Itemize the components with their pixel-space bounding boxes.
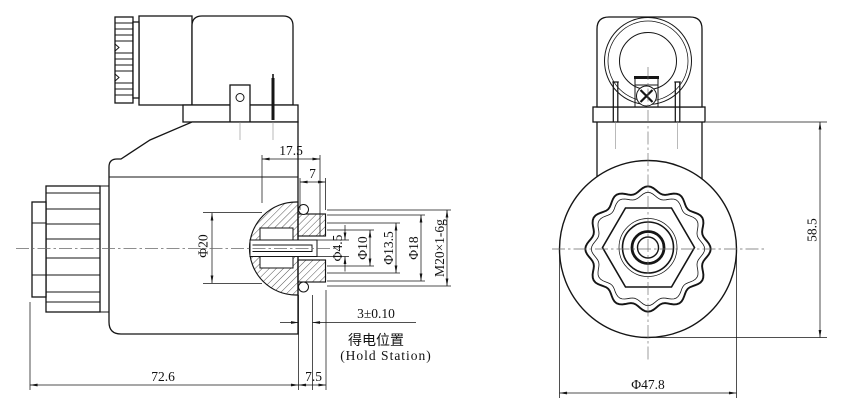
tab-hole [236, 94, 244, 102]
rib-drum [46, 186, 100, 312]
dim-coil-bore-dia: Φ20 [196, 234, 211, 258]
dim-nut-overhang: 7.5 [305, 369, 322, 384]
connector-flange-front [593, 107, 705, 122]
connector-back-block [139, 16, 192, 105]
front-view: 58.5 Φ47.8 [552, 17, 827, 398]
dim-pin-dia: Φ4.5 [330, 234, 345, 261]
side-view: 17.5 7 Φ20 Φ4.5 Φ10 Φ13.5 Φ18 M20×1-6g 3… [16, 16, 451, 390]
mounting-nut-lower [298, 260, 326, 282]
cable-gland [115, 17, 139, 103]
dim-coil-outer-dia: Φ47.8 [631, 377, 665, 392]
gland-neck [133, 22, 139, 98]
connector-front [597, 17, 702, 149]
dim-shoulder-dia: Φ18 [406, 236, 421, 260]
dim-stroke-tolerance: 3±0.10 [357, 306, 395, 321]
din-connector [115, 16, 293, 105]
dim-thread-spec: M20×1-6g [432, 219, 447, 277]
dim-nut-width: 7 [309, 166, 316, 181]
technical-drawing: 17.5 7 Φ20 Φ4.5 Φ10 Φ13.5 Φ18 M20×1-6g 3… [0, 0, 842, 415]
armature-ribs [32, 186, 109, 312]
label-hold-station-cn: 得电位置 [348, 332, 404, 349]
o-ring-bottom [299, 282, 309, 292]
label-hold-station-en: (Hold Station) [340, 348, 432, 363]
dim-bore-dia: Φ10 [355, 236, 370, 260]
gland-body [115, 17, 133, 103]
end-cap [32, 202, 46, 297]
dim-overall-height: 58.5 [805, 218, 820, 242]
mounting-nut-upper [298, 214, 326, 236]
terminal-tab [230, 85, 250, 122]
drawing-canvas: 17.5 7 Φ20 Φ4.5 Φ10 Φ13.5 Φ18 M20×1-6g 3… [0, 0, 842, 415]
dim-top-offset: 17.5 [279, 143, 303, 158]
dim-overall-length: 72.6 [151, 369, 175, 384]
dim-tube-dia: Φ13.5 [381, 231, 396, 265]
